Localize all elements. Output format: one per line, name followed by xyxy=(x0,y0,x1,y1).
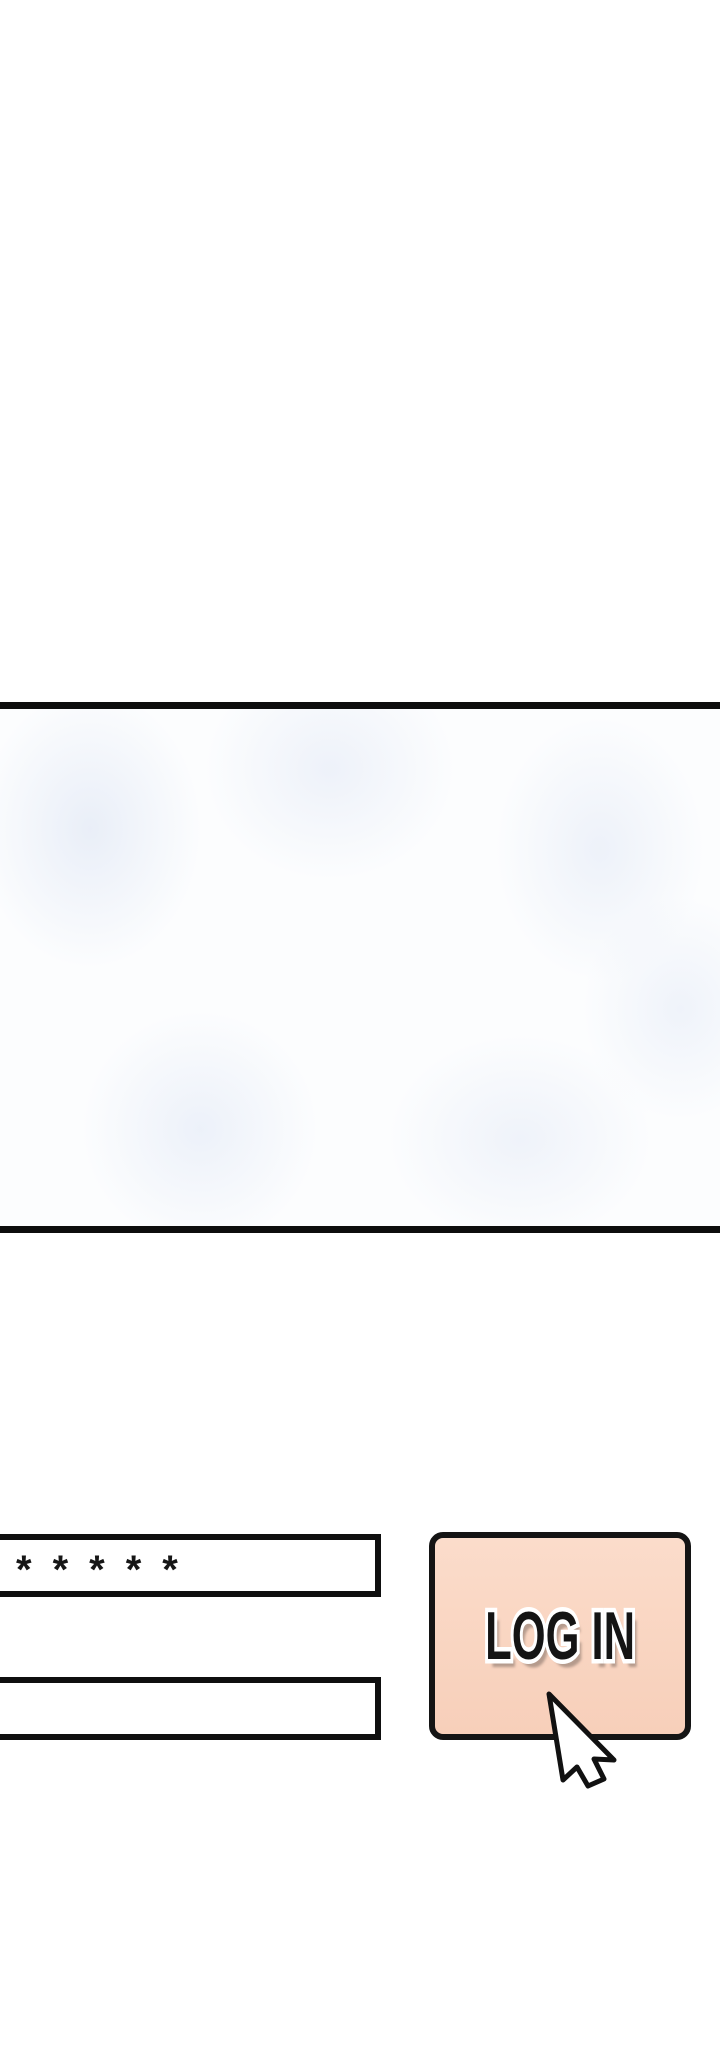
page: { "panel": { "border_color": "#0d0d0d", … xyxy=(0,0,720,2059)
comic-panel: ***** LOG IN LOG IN xyxy=(0,702,720,1233)
login-button[interactable]: LOG IN LOG IN xyxy=(429,1532,691,1740)
password-masked-text: ***** xyxy=(16,1550,199,1590)
login-button-label-wrap: LOG IN LOG IN xyxy=(485,1602,635,1670)
password-input[interactable]: ***** xyxy=(0,1534,381,1597)
login-button-label: LOG IN xyxy=(485,1602,635,1670)
text-input-empty[interactable] xyxy=(0,1677,381,1740)
